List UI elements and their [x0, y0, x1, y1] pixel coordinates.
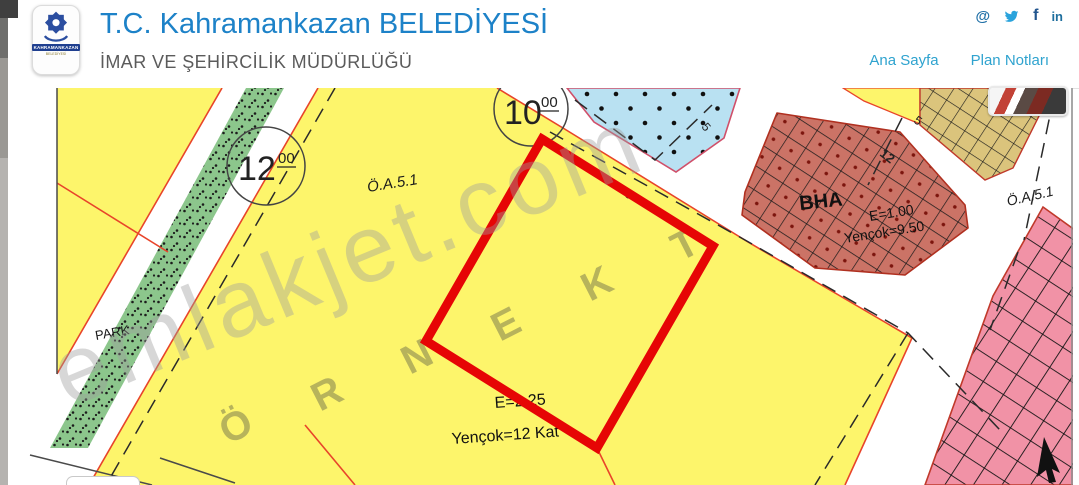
map-thumbnail-image — [990, 88, 1066, 114]
svg-text:00: 00 — [541, 94, 558, 111]
twitter-icon[interactable] — [1003, 9, 1020, 24]
zoning-map-viewport[interactable]: 12 00 10 00 Ö.A.5.1 Ö.A.5.1 PARK Ö R N E… — [8, 88, 1073, 485]
municipality-logo[interactable]: KAHRAMANKAZAN BELEDİYESİ — [32, 5, 80, 75]
bha-label: BHA — [798, 189, 843, 215]
page: KAHRAMANKAZAN BELEDİYESİ T.C. Kahramanka… — [0, 0, 1079, 485]
map-thumbnail[interactable] — [988, 86, 1068, 116]
linkedin-icon[interactable]: in — [1051, 9, 1063, 24]
social-links: @ f in — [975, 7, 1063, 25]
screen-edge-strip — [0, 18, 8, 485]
nav-item-ana-sayfa[interactable]: Ana Sayfa — [869, 52, 938, 69]
svg-text:12: 12 — [238, 150, 276, 188]
zoning-map[interactable]: 12 00 10 00 Ö.A.5.1 Ö.A.5.1 PARK Ö R N E… — [8, 88, 1073, 485]
logo-line1: KAHRAMANKAZAN — [32, 44, 81, 51]
screen-corner — [0, 0, 18, 18]
site-header: KAHRAMANKAZAN BELEDİYESİ T.C. Kahramanka… — [8, 0, 1079, 89]
page-title: T.C. Kahramankazan BELEDİYESİ — [100, 8, 548, 41]
facebook-icon[interactable]: f — [1033, 7, 1038, 25]
email-icon[interactable]: @ — [975, 8, 990, 25]
svg-text:00: 00 — [278, 150, 295, 167]
main-nav: Ana Sayfa Plan Notları — [869, 52, 1049, 69]
logo-emblem-icon — [37, 8, 75, 44]
logo-line2: BELEDİYESİ — [46, 52, 66, 56]
map-control-box[interactable] — [66, 476, 140, 485]
page-subtitle: İMAR VE ŞEHİRCİLİK MÜDÜRLÜĞÜ — [100, 52, 412, 73]
nav-item-plan-notlari[interactable]: Plan Notları — [971, 52, 1049, 69]
